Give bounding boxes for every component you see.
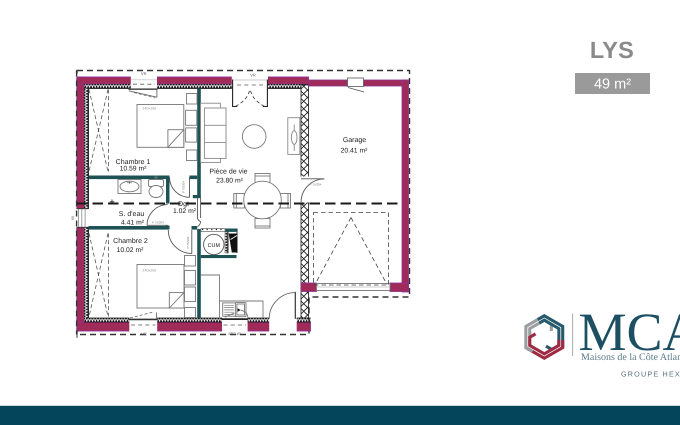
svg-text:VR: VR	[141, 331, 147, 336]
svg-text:S. d'eau: S. d'eau	[119, 210, 145, 218]
svg-text:4.41 m²: 4.41 m²	[121, 219, 145, 226]
svg-text:23.80 m²: 23.80 m²	[216, 177, 244, 184]
svg-text:140x190: 140x190	[143, 106, 157, 110]
svg-text:Garage: Garage	[343, 137, 366, 144]
svg-text:P 75/204: P 75/204	[152, 220, 164, 224]
svg-text:LYS: LYS	[590, 37, 634, 63]
svg-text:SP2.40: SP2.40	[228, 332, 241, 336]
svg-text:VR: VR	[250, 73, 256, 78]
svg-text:Chambre 2: Chambre 2	[113, 237, 148, 245]
svg-text:P 75/204: P 75/204	[186, 236, 190, 248]
svg-text:P 75/204: P 75/204	[310, 183, 322, 187]
svg-text:60: 60	[71, 216, 75, 220]
svg-text:10.02 m²: 10.02 m²	[117, 247, 145, 254]
svg-text:VR: VR	[141, 71, 147, 76]
svg-text:49 m²: 49 m²	[594, 77, 631, 93]
svg-text:Maisons de la Côte Atlantique: Maisons de la Côte Atlantique	[581, 352, 680, 363]
svg-text:20.41 m²: 20.41 m²	[341, 147, 369, 154]
svg-text:P 75/204: P 75/204	[182, 181, 186, 193]
svg-text:Dgt: Dgt	[178, 201, 189, 208]
svg-text:1.02 m²: 1.02 m²	[173, 208, 197, 215]
svg-text:10.59 m²: 10.59 m²	[120, 166, 148, 173]
svg-text:GROUPE HEXAOM: GROUPE HEXAOM	[621, 370, 680, 379]
svg-text:CUM: CUM	[208, 243, 221, 249]
svg-text:140x200: 140x200	[143, 268, 157, 272]
svg-text:Pièce de vie: Pièce de vie	[209, 167, 247, 175]
